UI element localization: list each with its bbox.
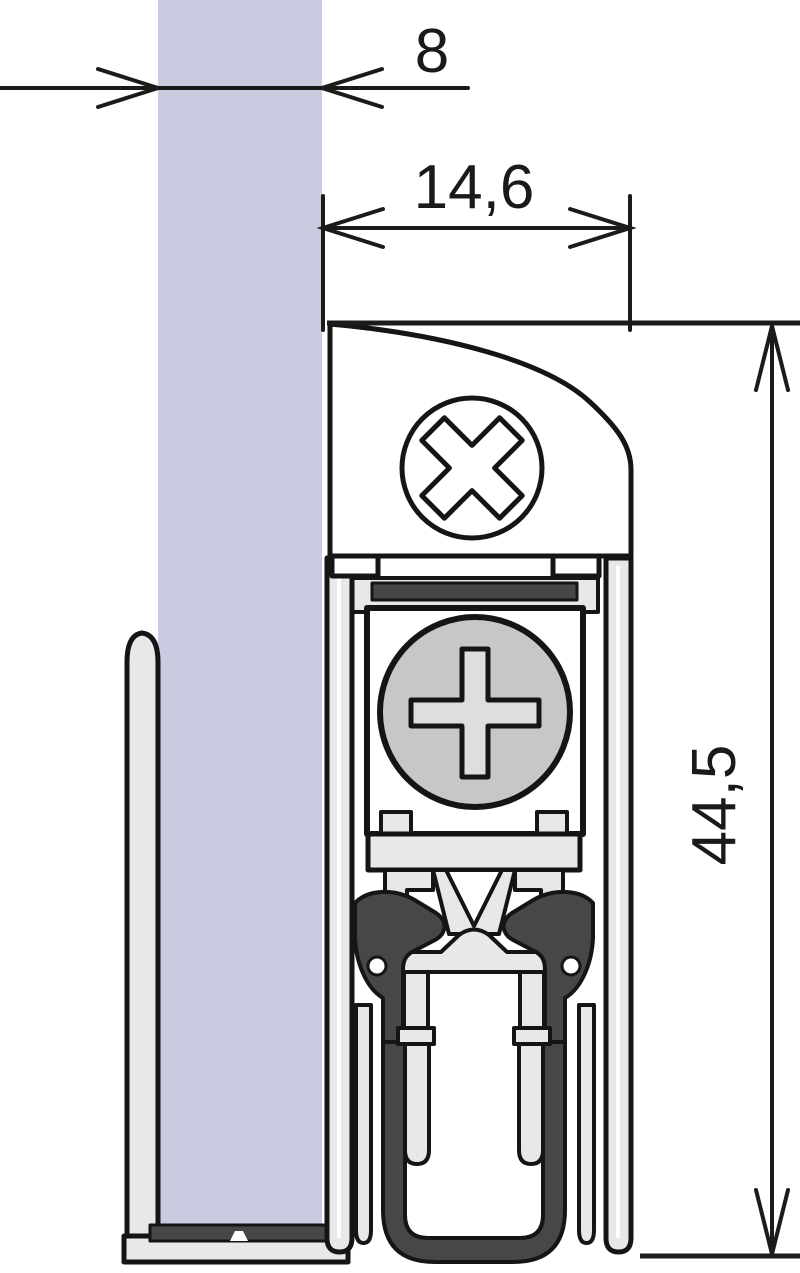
dimension-seal-width: 14,6 <box>323 153 630 330</box>
glass-pane <box>158 0 322 1232</box>
leg-insert-right <box>519 1044 543 1164</box>
inner-strip-left <box>356 1005 371 1243</box>
carrier-leg-left <box>404 972 428 1034</box>
technical-drawing-page: 8 14,6 44,5 <box>0 0 800 1273</box>
carrier-leg-right <box>520 972 544 1034</box>
housing-top-slot <box>372 583 577 600</box>
rail-groove-right <box>616 566 620 1238</box>
inner-strip-right <box>579 1005 594 1243</box>
insert-cap-right <box>514 1028 550 1044</box>
carrier-top-bar <box>368 834 580 870</box>
insert-cap-left <box>398 1028 434 1044</box>
dim-label-seal-height: 44,5 <box>680 745 749 866</box>
dim-label-seal-width: 14,6 <box>414 153 535 222</box>
rail-groove-left <box>337 566 341 1238</box>
door-seal-cross-section: 8 14,6 44,5 <box>0 0 800 1273</box>
rubber-hole-right <box>562 957 580 975</box>
rubber-hole-left <box>368 957 386 975</box>
leg-insert-left <box>405 1044 429 1164</box>
glass-clamp-leg <box>127 633 158 1238</box>
dim-label-glass-thickness: 8 <box>415 17 449 86</box>
